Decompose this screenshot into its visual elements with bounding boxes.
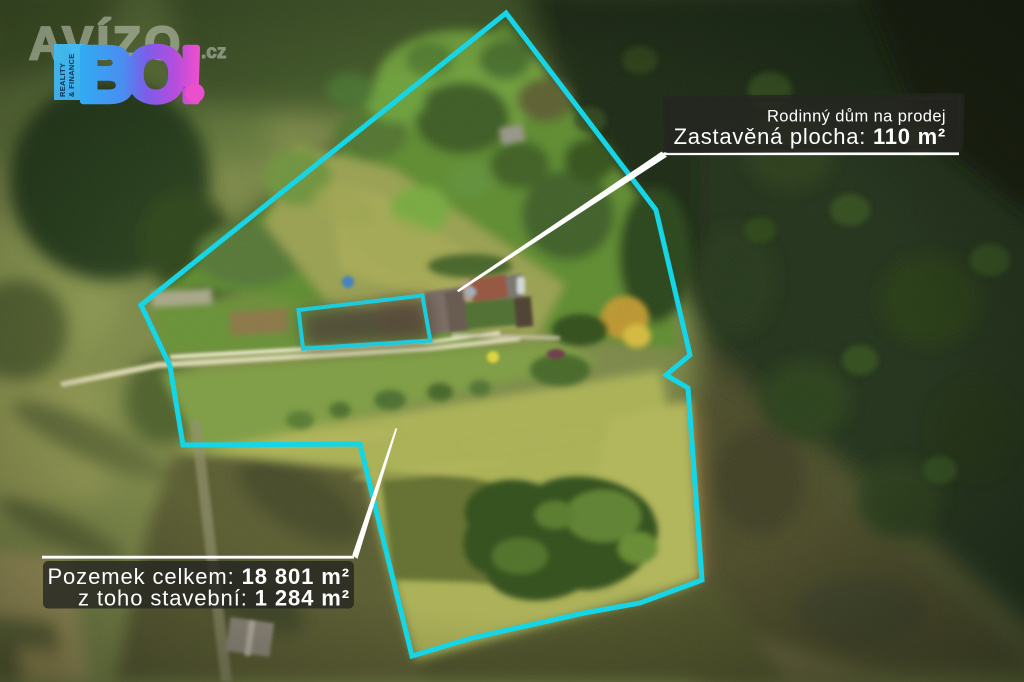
svg-text:.cz: .cz — [201, 42, 226, 63]
svg-text:Rodinný dům na prodej: Rodinný dům na prodej — [767, 108, 946, 126]
svg-text:REALITY: REALITY — [58, 63, 67, 97]
svg-text:z toho stavební: 1 284 m²: z toho stavební: 1 284 m² — [78, 586, 350, 611]
svg-text:BO!: BO! — [78, 32, 198, 118]
svg-text:Zastavěná plocha: 110 m²: Zastavěná plocha: 110 m² — [674, 124, 946, 149]
svg-text:& FINANCE: & FINANCE — [67, 53, 76, 97]
